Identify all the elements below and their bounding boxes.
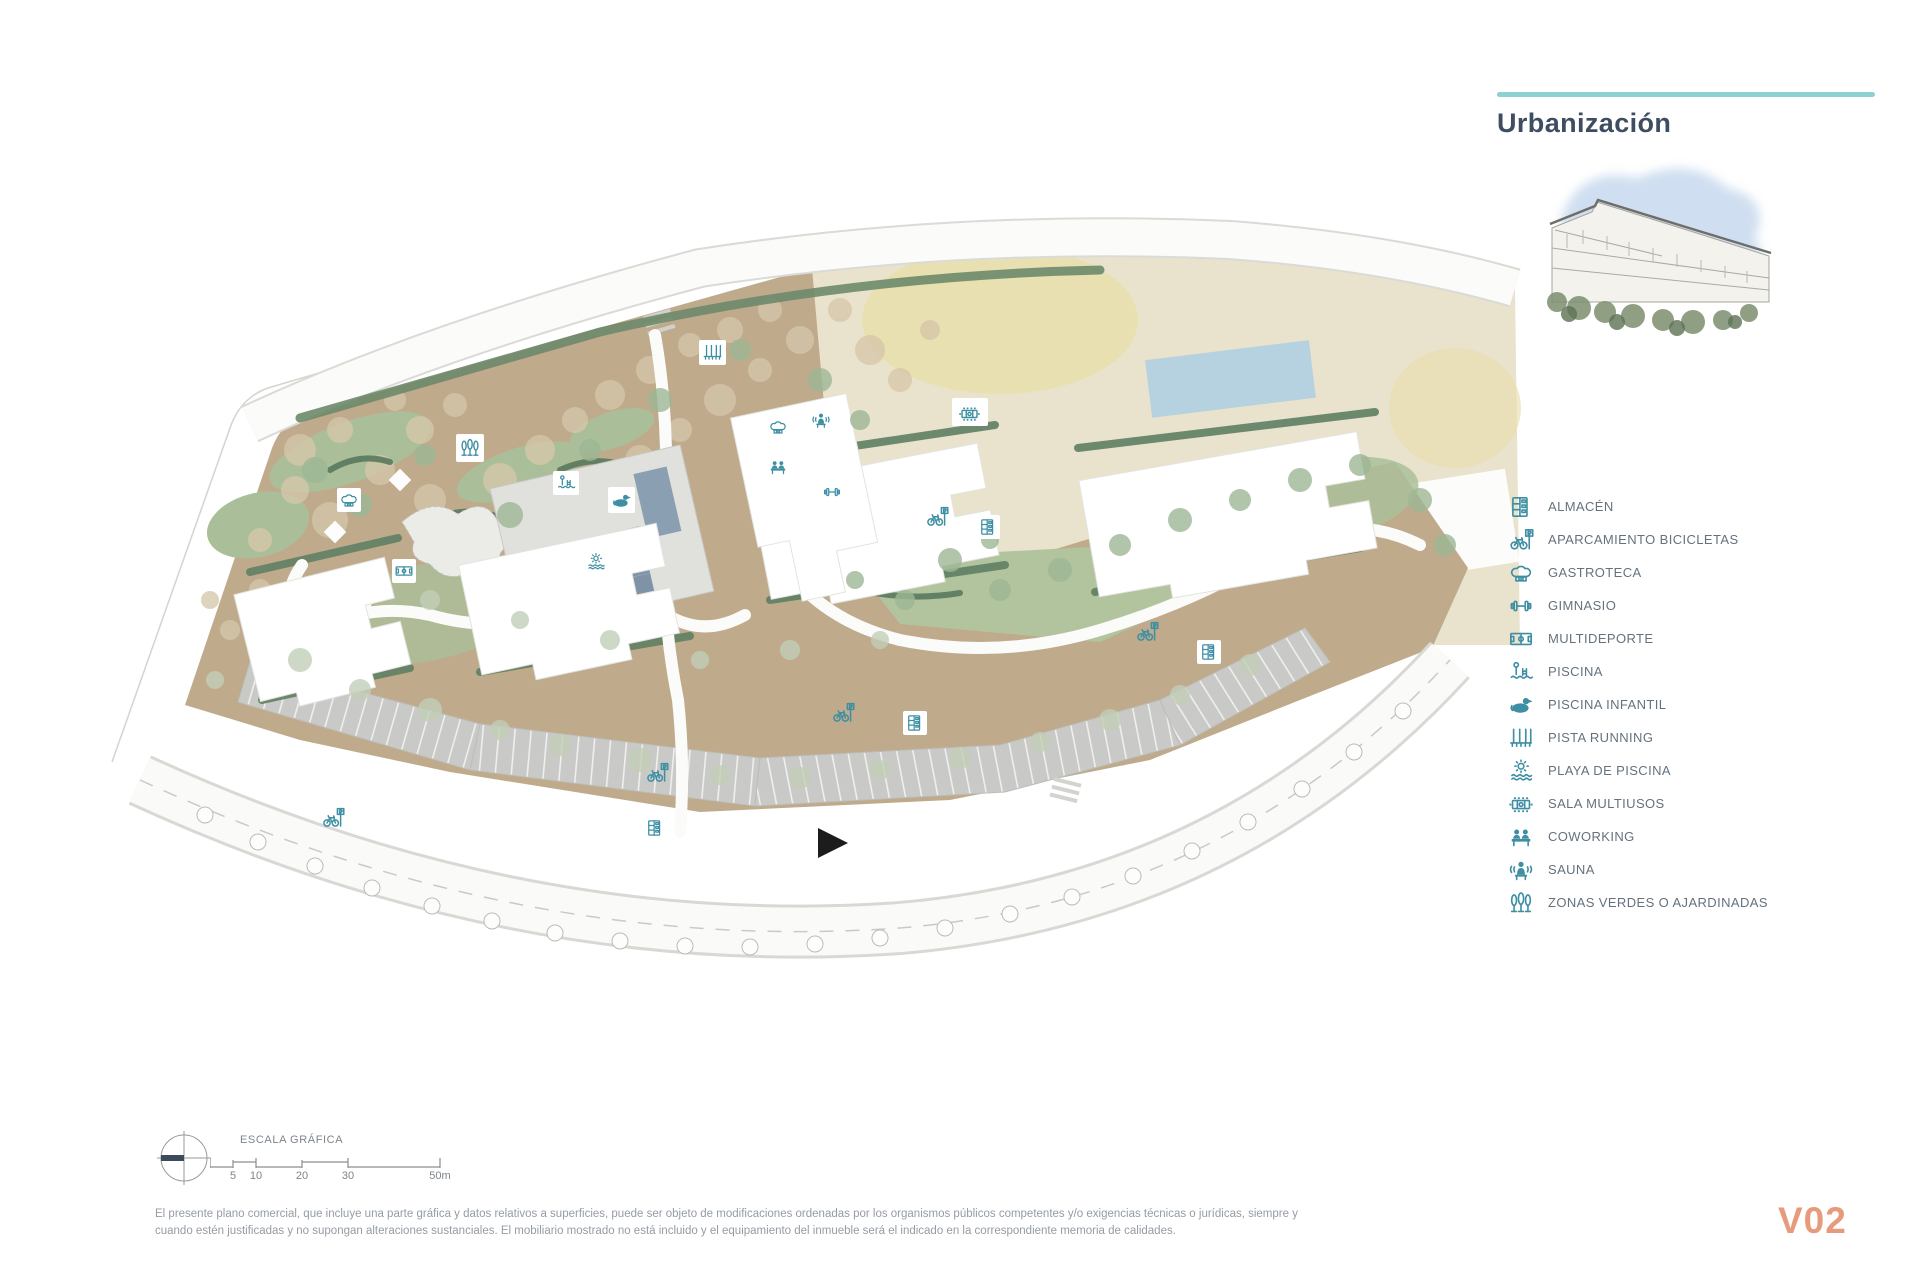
legend-item-label: PLAYA DE PISCINA — [1548, 763, 1671, 778]
legend-item-pista-running: PISTA RUNNING — [1508, 721, 1768, 754]
legend-item-gastroteca: GASTROTECA — [1508, 556, 1768, 589]
legend-item-coworking: COWORKING — [1508, 820, 1768, 853]
map-marker-sauna — [808, 408, 833, 432]
map-marker-bike-parking — [324, 809, 344, 827]
scale-tick-label: 10 — [250, 1170, 262, 1182]
legend-item-sala-multiusos: SALA MULTIUSOS — [1508, 787, 1768, 820]
legend-item-aparcamiento-bicicletas: APARCAMIENTO BICICLETAS — [1508, 523, 1768, 556]
entrance-arrow — [818, 828, 848, 858]
legend-item-label: COWORKING — [1548, 829, 1635, 844]
page-title: Urbanización — [1497, 108, 1671, 139]
almacen-icon — [1508, 494, 1534, 520]
legend-item-label: ZONAS VERDES O AJARDINADAS — [1548, 895, 1768, 910]
gym-icon — [1508, 593, 1534, 619]
pool-beach-icon — [1508, 758, 1534, 784]
disclaimer-line-2: cuando estén justificadas y no supongan … — [155, 1223, 1455, 1240]
map-marker-piscina — [553, 471, 579, 495]
map-marker-multideporte — [392, 559, 416, 583]
legend-item-label: GASTROTECA — [1548, 565, 1642, 580]
legend-item-label: PISTA RUNNING — [1548, 730, 1653, 745]
map-marker-gastroteca — [337, 488, 361, 512]
map-marker-almacen — [976, 515, 1000, 539]
sauna-icon — [1508, 857, 1534, 883]
map-marker-gastroteca-2 — [766, 415, 790, 439]
legend-item-gimnasio: GIMNASIO — [1508, 589, 1768, 622]
map-marker-sala-multiusos — [952, 398, 988, 426]
multiuse-room-icon — [1508, 791, 1534, 817]
crosswalk — [1049, 777, 1081, 803]
legend-item-playa-de-piscina: PLAYA DE PISCINA — [1508, 754, 1768, 787]
map-marker-almacen — [1197, 640, 1221, 664]
scale-tick-label: 20 — [296, 1170, 308, 1182]
legend-item-label: SALA MULTIUSOS — [1548, 796, 1665, 811]
plan-sheet: Urbanización ALMACÉN APARCAMIENTO BICICL… — [0, 0, 1920, 1280]
legend-item-label: APARCAMIENTO BICICLETAS — [1548, 532, 1739, 547]
pool-icon — [1508, 659, 1534, 685]
map-marker-playa-piscina — [583, 550, 608, 574]
green-areas-icon — [1508, 890, 1534, 916]
scale-bar-title: ESCALA GRÁFICA — [240, 1134, 343, 1146]
north-compass-icon — [155, 1130, 211, 1186]
map-marker-piscina-infantil — [608, 487, 635, 513]
legend-item-label: MULTIDEPORTE — [1548, 631, 1653, 646]
legend: ALMACÉN APARCAMIENTO BICICLETAS GASTROTE… — [1508, 490, 1768, 919]
scale-tick-label: 30 — [342, 1170, 354, 1182]
legend-item-almacen: ALMACÉN — [1508, 490, 1768, 523]
kids-pool-icon — [1508, 692, 1534, 718]
map-marker-almacen — [903, 711, 927, 735]
scale-bar: ESCALA GRÁFICA 5 10 20 30 50m — [155, 1128, 495, 1203]
multisport-icon — [1508, 626, 1534, 652]
map-marker-gimnasio — [819, 480, 844, 504]
legend-item-label: PISCINA INFANTIL — [1548, 697, 1666, 712]
legend-item-label: GIMNASIO — [1548, 598, 1616, 613]
legend-item-label: PISCINA — [1548, 664, 1603, 679]
legend-item-label: SAUNA — [1548, 862, 1595, 877]
legend-item-label: ALMACÉN — [1548, 499, 1614, 514]
legend-item-sauna: SAUNA — [1508, 853, 1768, 886]
legend-item-piscina-infantil: PISCINA INFANTIL — [1508, 688, 1768, 721]
scale-ruler-labels: 5 10 20 30 50m — [210, 1170, 450, 1184]
legend-item-piscina: PISCINA — [1508, 655, 1768, 688]
running-track-icon — [1508, 725, 1534, 751]
legend-item-zonas-verdes: ZONAS VERDES O AJARDINADAS — [1508, 886, 1768, 919]
scale-tick-label: 5 — [230, 1170, 236, 1182]
accent-rule — [1497, 92, 1875, 97]
map-marker-pista-running — [699, 340, 726, 365]
legend-item-multideporte: MULTIDEPORTE — [1508, 622, 1768, 655]
scale-tick-label: 50m — [429, 1170, 450, 1182]
bike-parking-icon — [1508, 527, 1534, 553]
version-label: V02 — [1778, 1200, 1847, 1242]
map-marker-coworking — [765, 455, 790, 479]
coworking-icon — [1508, 824, 1534, 850]
gastroteca-icon — [1508, 560, 1534, 586]
disclaimer-text: El presente plano comercial, que incluye… — [155, 1206, 1455, 1241]
map-marker-almacen — [643, 816, 667, 840]
building-render — [1537, 150, 1797, 365]
disclaimer-line-1: El presente plano comercial, que incluye… — [155, 1206, 1455, 1223]
map-marker-zonas-verdes — [456, 434, 484, 462]
info-panel: Urbanización ALMACÉN APARCAMIENTO BICICL… — [1497, 0, 1907, 1280]
